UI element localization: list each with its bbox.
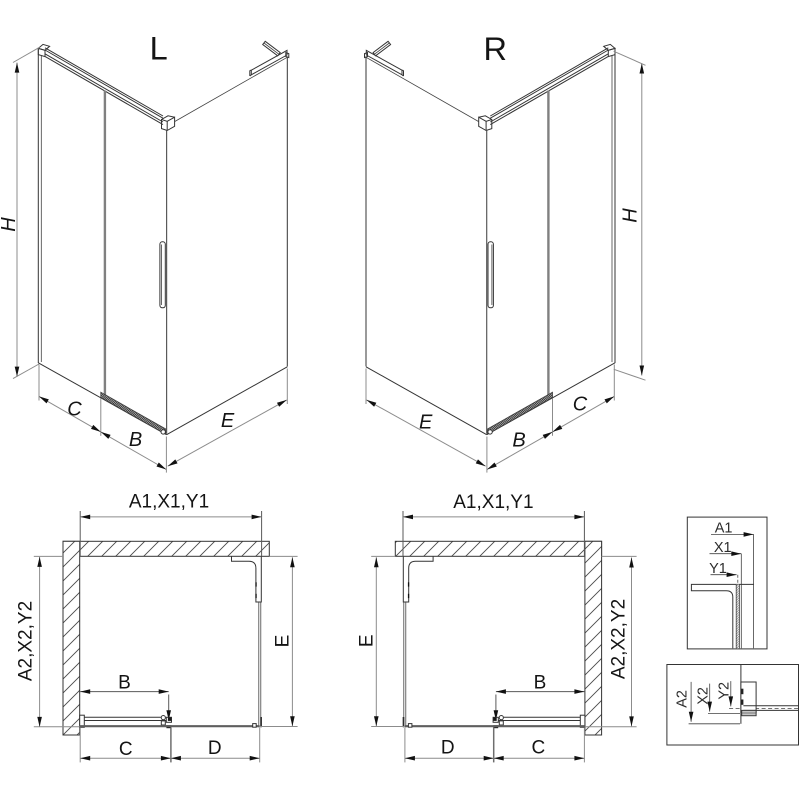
svg-text:D: D bbox=[441, 737, 455, 758]
svg-text:C: C bbox=[532, 737, 546, 758]
svg-text:C: C bbox=[67, 399, 82, 421]
svg-text:A1: A1 bbox=[715, 520, 733, 536]
svg-text:C: C bbox=[573, 394, 588, 416]
svg-text:Y2: Y2 bbox=[717, 682, 733, 700]
svg-text:E: E bbox=[273, 635, 294, 648]
svg-text:A2: A2 bbox=[675, 690, 691, 708]
svg-text:A2,X2,Y2: A2,X2,Y2 bbox=[609, 599, 630, 679]
svg-text:E: E bbox=[221, 410, 235, 432]
svg-text:H: H bbox=[619, 208, 641, 223]
svg-text:H: H bbox=[0, 217, 20, 232]
svg-text:L: L bbox=[150, 31, 168, 67]
svg-text:A1,X1,Y1: A1,X1,Y1 bbox=[453, 492, 533, 513]
svg-text:B: B bbox=[118, 673, 131, 694]
svg-text:B: B bbox=[534, 673, 547, 694]
svg-text:B: B bbox=[129, 429, 142, 451]
svg-text:A2,X2,Y2: A2,X2,Y2 bbox=[16, 601, 37, 681]
svg-text:E: E bbox=[356, 634, 377, 647]
svg-text:A1,X1,Y1: A1,X1,Y1 bbox=[129, 492, 209, 513]
svg-text:D: D bbox=[208, 738, 222, 759]
svg-text:E: E bbox=[419, 412, 433, 434]
svg-text:B: B bbox=[512, 430, 525, 452]
svg-text:C: C bbox=[119, 739, 133, 760]
svg-text:R: R bbox=[483, 31, 506, 67]
svg-text:X2: X2 bbox=[696, 687, 712, 705]
